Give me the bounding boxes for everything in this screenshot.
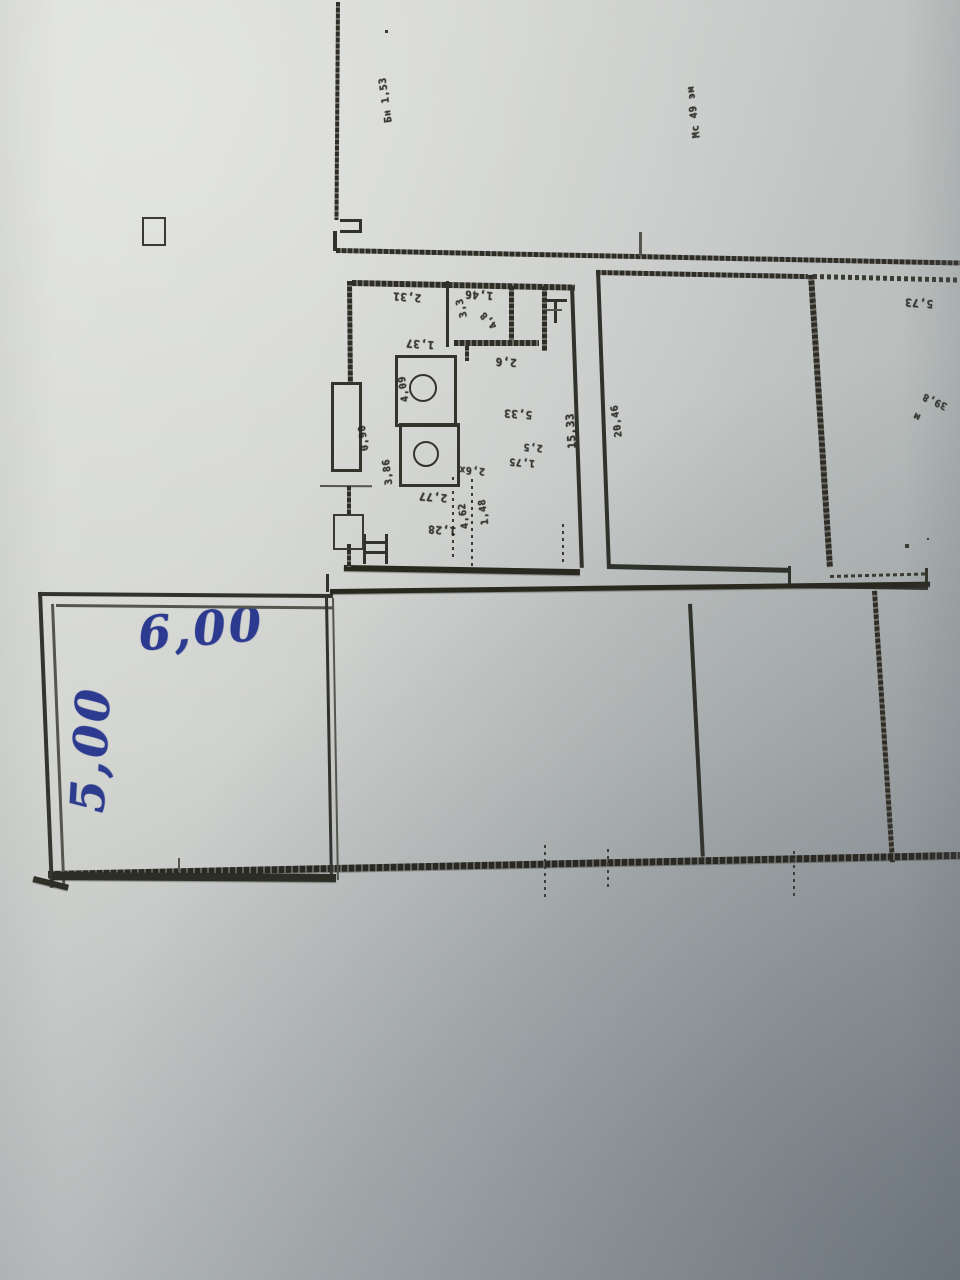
long-upper-wall <box>336 248 960 266</box>
annotated-room-right-inner <box>332 598 339 880</box>
hall-divider-hatched <box>872 591 895 863</box>
dim-1-28: 1,28 <box>427 523 456 538</box>
stair-symbol-bar-1 <box>366 541 387 544</box>
dim-1-46: 1,46 <box>464 288 493 302</box>
dim-0-90: 0,90 <box>357 424 372 451</box>
dim-4-8: 4,8 <box>478 309 500 331</box>
middle-room-left-wall <box>596 270 610 567</box>
dim-5-73: 5,73 <box>904 296 933 311</box>
bottom-tick-1 <box>178 858 180 872</box>
print-speck-3 <box>927 538 929 540</box>
wall-notch-bottom <box>340 230 362 233</box>
dim-vertical-topright: Мс 49 эм <box>685 85 702 138</box>
partition-1 <box>446 281 449 347</box>
bottom-tick-2 <box>544 845 546 897</box>
middle-room-top-wall <box>596 270 808 279</box>
print-speck-1 <box>385 30 388 33</box>
annotated-room-left-outer <box>38 592 53 888</box>
dim-2-31: 2,31 <box>392 290 421 305</box>
annotated-room-left-inner <box>51 604 65 887</box>
dim-4-62: 4,62 <box>457 502 472 529</box>
dim-1-75: 1,75 <box>509 456 536 469</box>
central-block-left-wall-2 <box>347 486 351 516</box>
dim-5-33: 5,33 <box>503 407 532 422</box>
stair-symbol-bar-2 <box>366 551 387 554</box>
round-fixture-2 <box>413 441 439 467</box>
bottom-tick-3 <box>607 849 609 889</box>
dim-3-86: 3,86 <box>381 458 395 485</box>
dim-20-46: 20,46 <box>609 404 624 438</box>
right-room-top-wall <box>813 274 960 283</box>
right-room-bottom-dashed <box>830 572 928 578</box>
annotated-room-top-outer <box>38 592 333 598</box>
dim-15-33: 15,33 <box>563 413 578 449</box>
wall-pillar-2 <box>333 514 364 550</box>
annotated-room-right-outer <box>325 598 333 880</box>
dotted-partition-1 <box>471 479 473 567</box>
dim-39-8: 39,8 <box>921 391 949 412</box>
dim-m: м <box>912 410 923 423</box>
stair-symbol-right <box>385 534 388 564</box>
dim-2-77: 2,77 <box>418 490 447 505</box>
annotated-room-bottom <box>52 872 336 882</box>
partition-3-hatched <box>542 286 547 351</box>
partition-stub <box>465 346 469 361</box>
photo-of-floor-plan: 6,00 5,00 Бн 1,53Мс 49 эм2,311,463,34,81… <box>0 0 960 1280</box>
handwritten-height-dimension: 5,00 <box>60 685 122 814</box>
print-speck-2 <box>905 544 909 548</box>
dim-vertical-topleft: Бн 1,53 <box>377 77 394 124</box>
dim-1-48: 1,48 <box>477 498 492 525</box>
sink-symbol-stem <box>554 302 557 323</box>
central-block-bottom-wall <box>344 565 580 575</box>
dotted-partition-2 <box>452 477 454 557</box>
dim-1-37: 1,37 <box>405 337 434 352</box>
middle-room-bottom-wall <box>607 564 791 572</box>
partition-2-hatched <box>509 286 514 343</box>
dim-2-5: 2,5 <box>523 441 543 453</box>
tick-above-middle-room <box>639 232 642 256</box>
central-block-left-wall-1 <box>347 281 352 383</box>
dotted-partition-3 <box>562 524 564 566</box>
middle-room-right-wall <box>808 275 833 568</box>
sink-symbol-bar-2 <box>547 309 562 311</box>
column-symbol <box>142 217 166 246</box>
exterior-wall-top-left-vertical <box>334 2 340 220</box>
round-fixture-1 <box>409 374 437 402</box>
floor-plan: 6,00 5,00 Бн 1,53Мс 49 эм2,311,463,34,81… <box>0 0 960 1280</box>
door-threshold-line <box>320 485 372 487</box>
dim-2-6x: 2,6х <box>459 464 486 477</box>
annotated-room-right-stub <box>326 574 329 592</box>
bottom-tick-4 <box>793 851 795 897</box>
hall-divider-solid <box>688 604 704 857</box>
dim-2-6: 2,6 <box>495 355 517 369</box>
